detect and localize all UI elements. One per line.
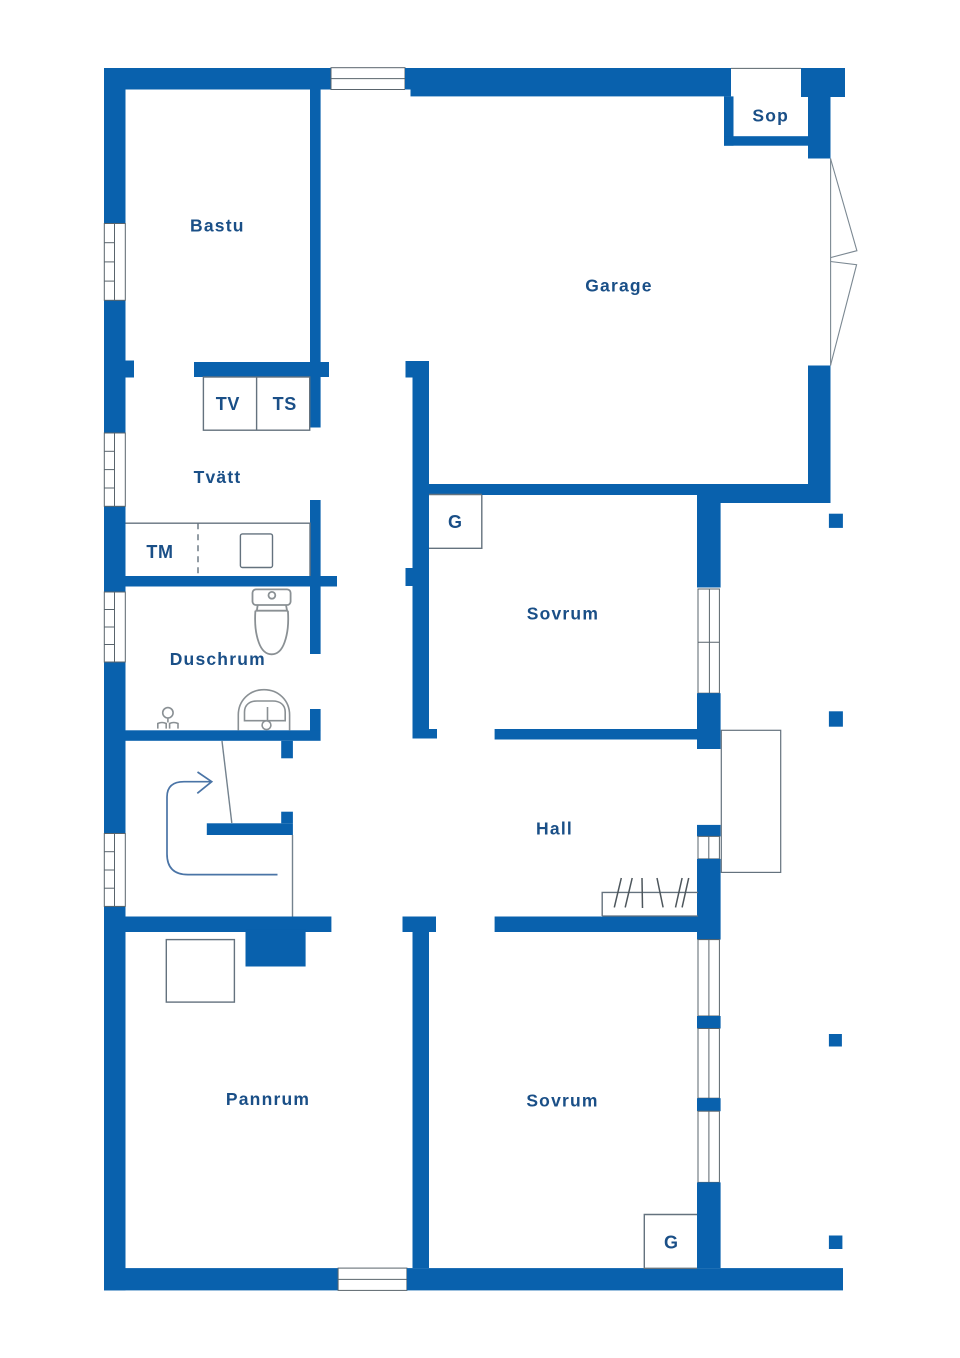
svg-text:Bastu: Bastu: [190, 215, 245, 235]
svg-text:G: G: [448, 512, 463, 532]
svg-text:TV: TV: [216, 394, 240, 414]
svg-text:Sovrum: Sovrum: [526, 1091, 598, 1111]
svg-text:Tvätt: Tvätt: [194, 467, 242, 487]
svg-text:Sovrum: Sovrum: [527, 603, 599, 623]
svg-text:Sop: Sop: [752, 106, 789, 126]
svg-text:Duschrum: Duschrum: [170, 649, 266, 669]
svg-text:TS: TS: [273, 394, 297, 414]
svg-text:G: G: [664, 1233, 679, 1253]
svg-text:Hall: Hall: [536, 819, 573, 839]
svg-text:Pannrum: Pannrum: [226, 1089, 310, 1109]
svg-text:Garage: Garage: [585, 275, 653, 295]
svg-text:TM: TM: [146, 542, 173, 562]
